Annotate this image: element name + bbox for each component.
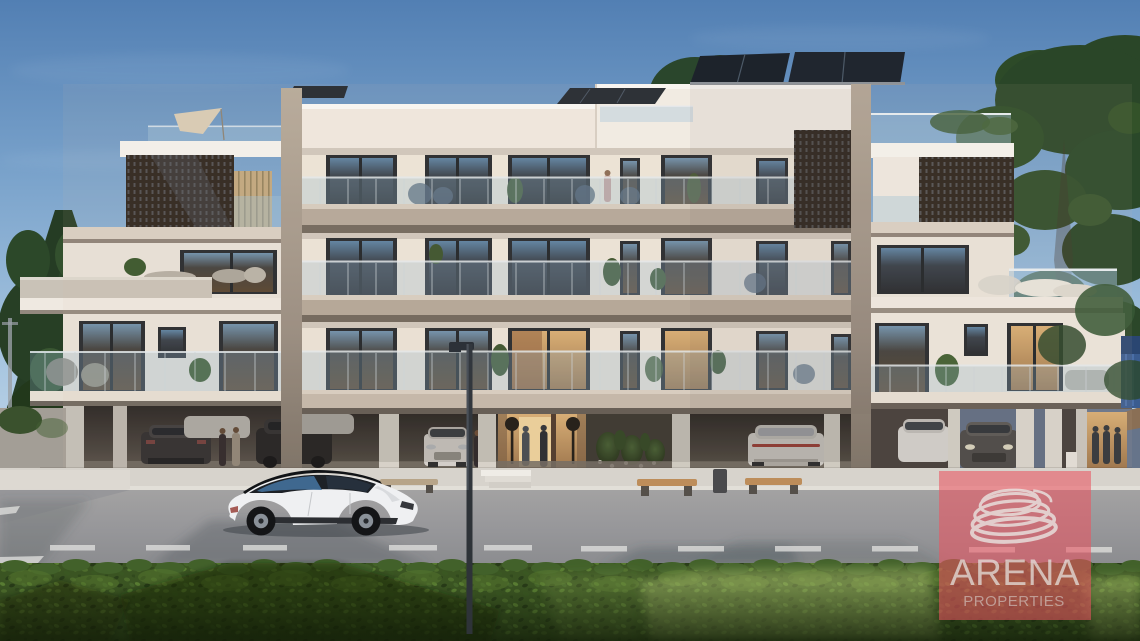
svg-text:ARENA: ARENA [950,552,1080,593]
svg-text:PROPERTIES: PROPERTIES [963,593,1064,610]
